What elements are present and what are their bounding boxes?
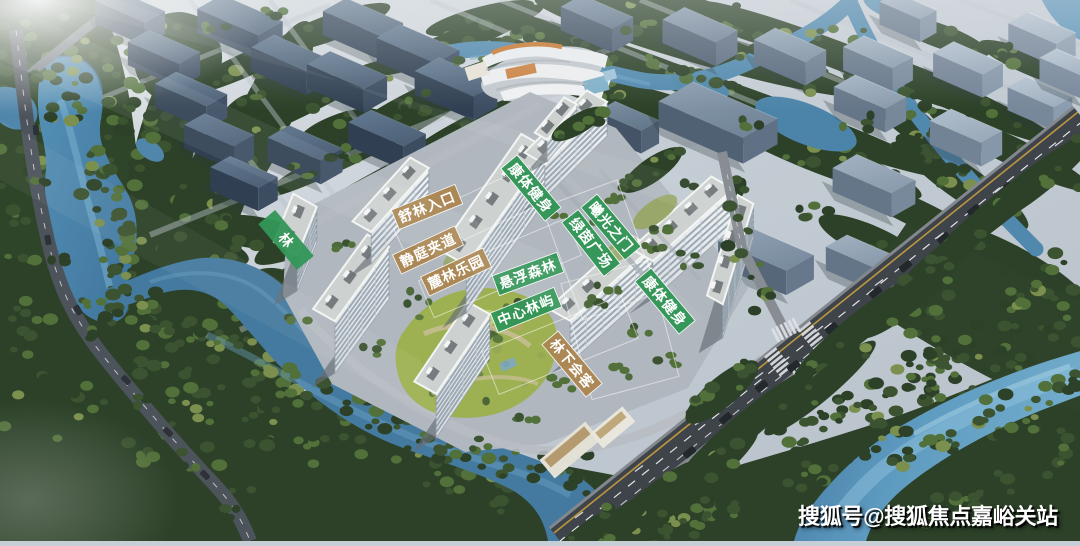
svg-text:搜狐号@搜狐焦点嘉峪关站: 搜狐号@搜狐焦点嘉峪关站 xyxy=(798,504,1058,529)
